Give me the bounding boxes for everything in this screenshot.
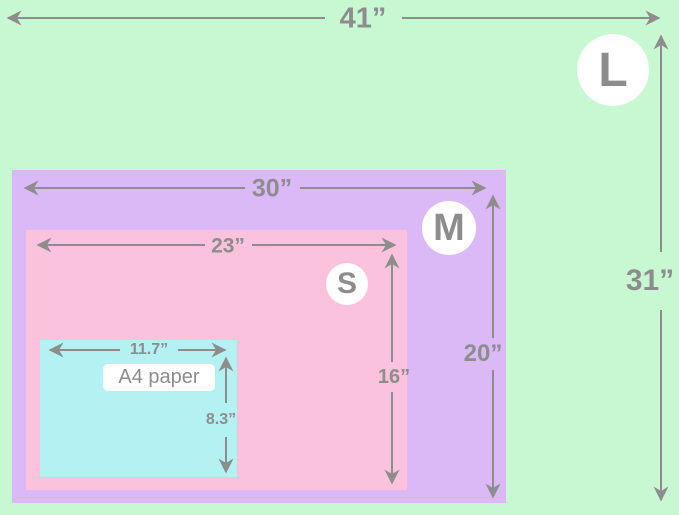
a4-paper-label: A4 paper: [118, 366, 199, 389]
height-dimension-s: 16”: [378, 367, 410, 387]
height-dimension-l: 31”: [626, 266, 674, 296]
size-badge-m: M: [422, 201, 476, 255]
size-rect-l: L M S 41” 31” 30” 20” 23” 16” 11.7” 8.3”…: [0, 0, 679, 515]
height-dimension-a4: 8.3”: [206, 412, 236, 428]
width-dimension-a4: 11.7”: [130, 342, 168, 358]
a4-paper-label-box: A4 paper: [103, 364, 215, 391]
a4-paper-rect: [40, 340, 237, 477]
size-badge-m-letter: M: [433, 207, 465, 250]
width-dimension-l: 41”: [340, 5, 387, 34]
height-dimension-m: 20”: [464, 342, 503, 366]
width-dimension-m: 30”: [252, 177, 292, 202]
width-dimension-s: 23”: [211, 236, 245, 257]
size-badge-s: S: [326, 263, 368, 305]
size-badge-l-letter: L: [598, 43, 627, 98]
size-badge-l: L: [577, 34, 649, 106]
size-badge-s-letter: S: [337, 267, 357, 301]
